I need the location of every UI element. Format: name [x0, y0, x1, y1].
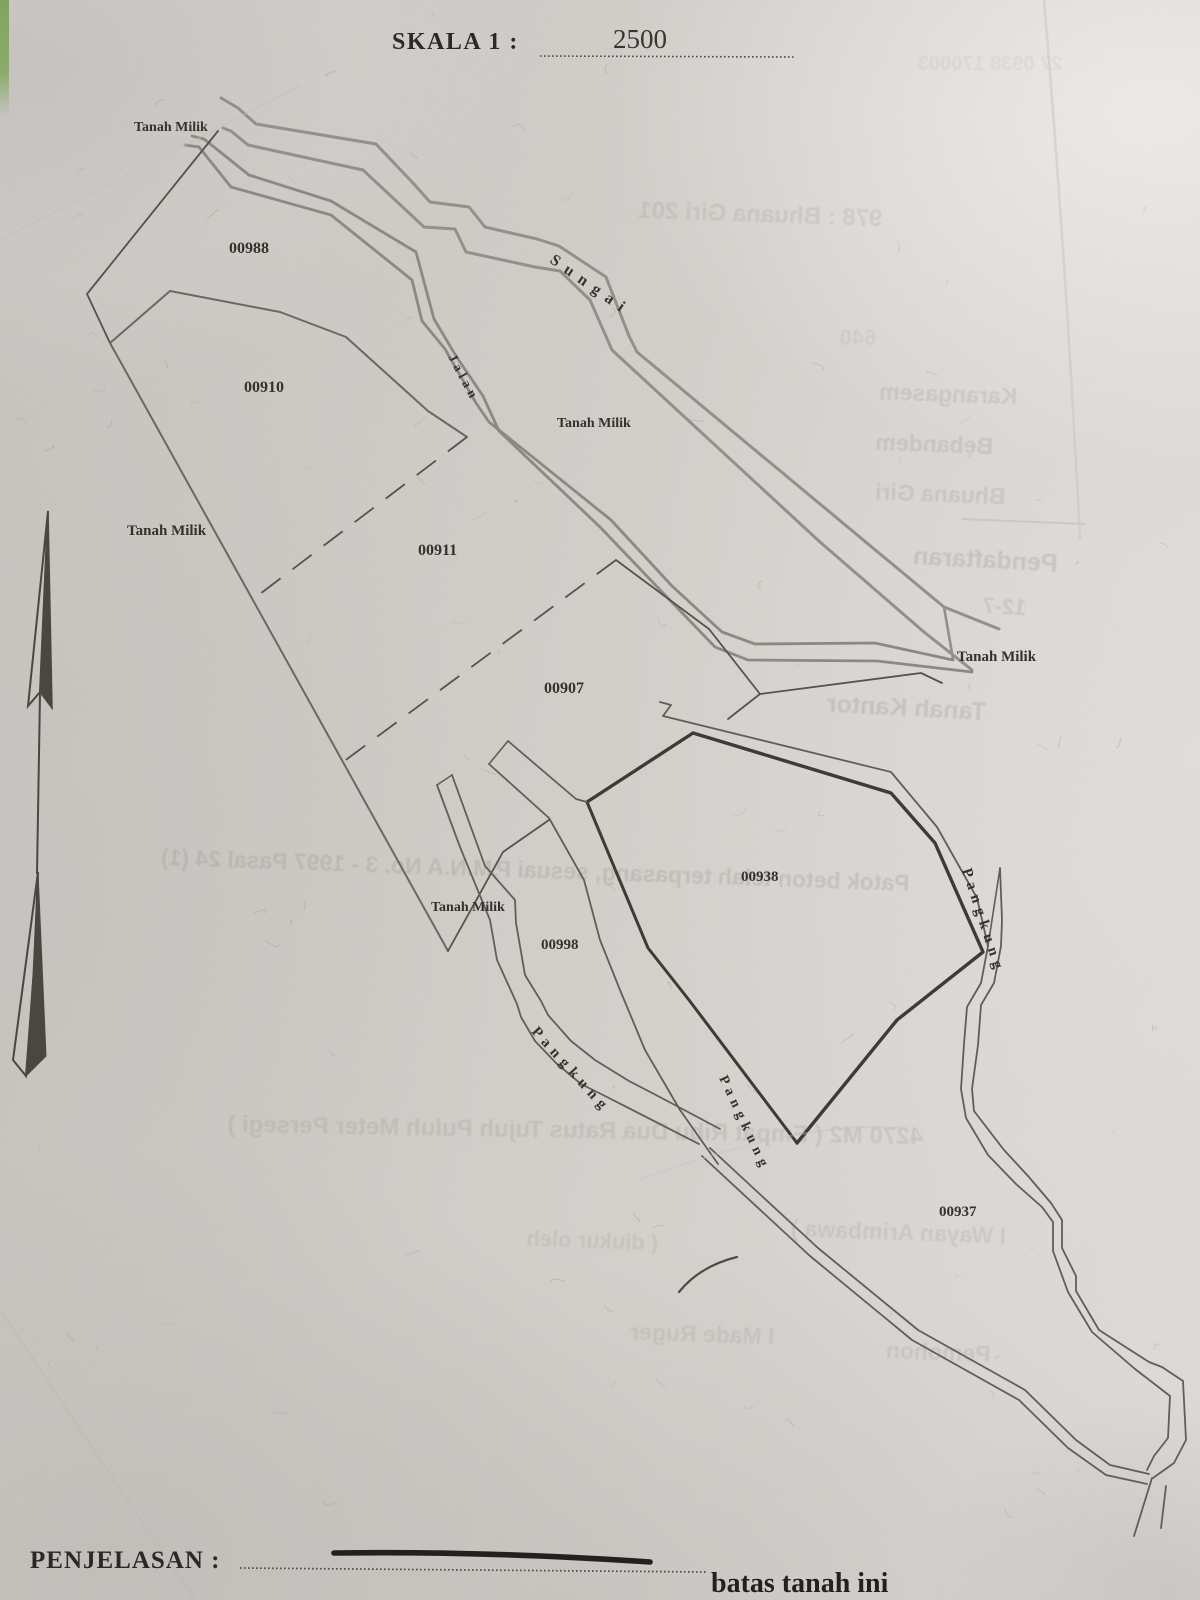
svg-text:640: 640: [840, 325, 877, 350]
svg-text:00938: 00938: [741, 869, 779, 885]
svg-text:00907: 00907: [544, 680, 584, 697]
svg-text:00911: 00911: [418, 542, 457, 559]
svg-text:2500: 2500: [613, 24, 667, 54]
svg-text:Tanah Milik: Tanah Milik: [557, 416, 631, 431]
svg-text:batas tanah ini: batas tanah ini: [711, 1568, 889, 1599]
svg-text:SKALA 1 :: SKALA 1 :: [392, 29, 519, 55]
svg-text:00988: 00988: [229, 240, 269, 257]
svg-text:12-7: 12-7: [982, 593, 1027, 620]
svg-text:Tanah Milik: Tanah Milik: [431, 900, 505, 915]
svg-text:Tanah Milik: Tanah Milik: [134, 120, 208, 135]
svg-text:Bhuana Giri: Bhuana Giri: [875, 479, 1006, 510]
svg-text:Tanah Milik: Tanah Milik: [127, 523, 207, 539]
svg-text:00910: 00910: [244, 379, 284, 396]
svg-text:( diukur oleh: ( diukur oleh: [526, 1226, 659, 1256]
svg-text:I Made Ruger: I Made Ruger: [630, 1318, 775, 1349]
svg-text:00998: 00998: [541, 937, 579, 953]
svg-text:Tanah Milik: Tanah Milik: [957, 649, 1037, 665]
svg-text:Karangasem: Karangasem: [879, 379, 1018, 410]
svg-text:PENJELASAN :: PENJELASAN :: [30, 1547, 221, 1574]
svg-text:00937: 00937: [939, 1204, 977, 1220]
svg-text:27 0938 170003: 27 0938 170003: [918, 53, 1063, 75]
svg-text:Bebandem: Bebandem: [875, 429, 993, 459]
